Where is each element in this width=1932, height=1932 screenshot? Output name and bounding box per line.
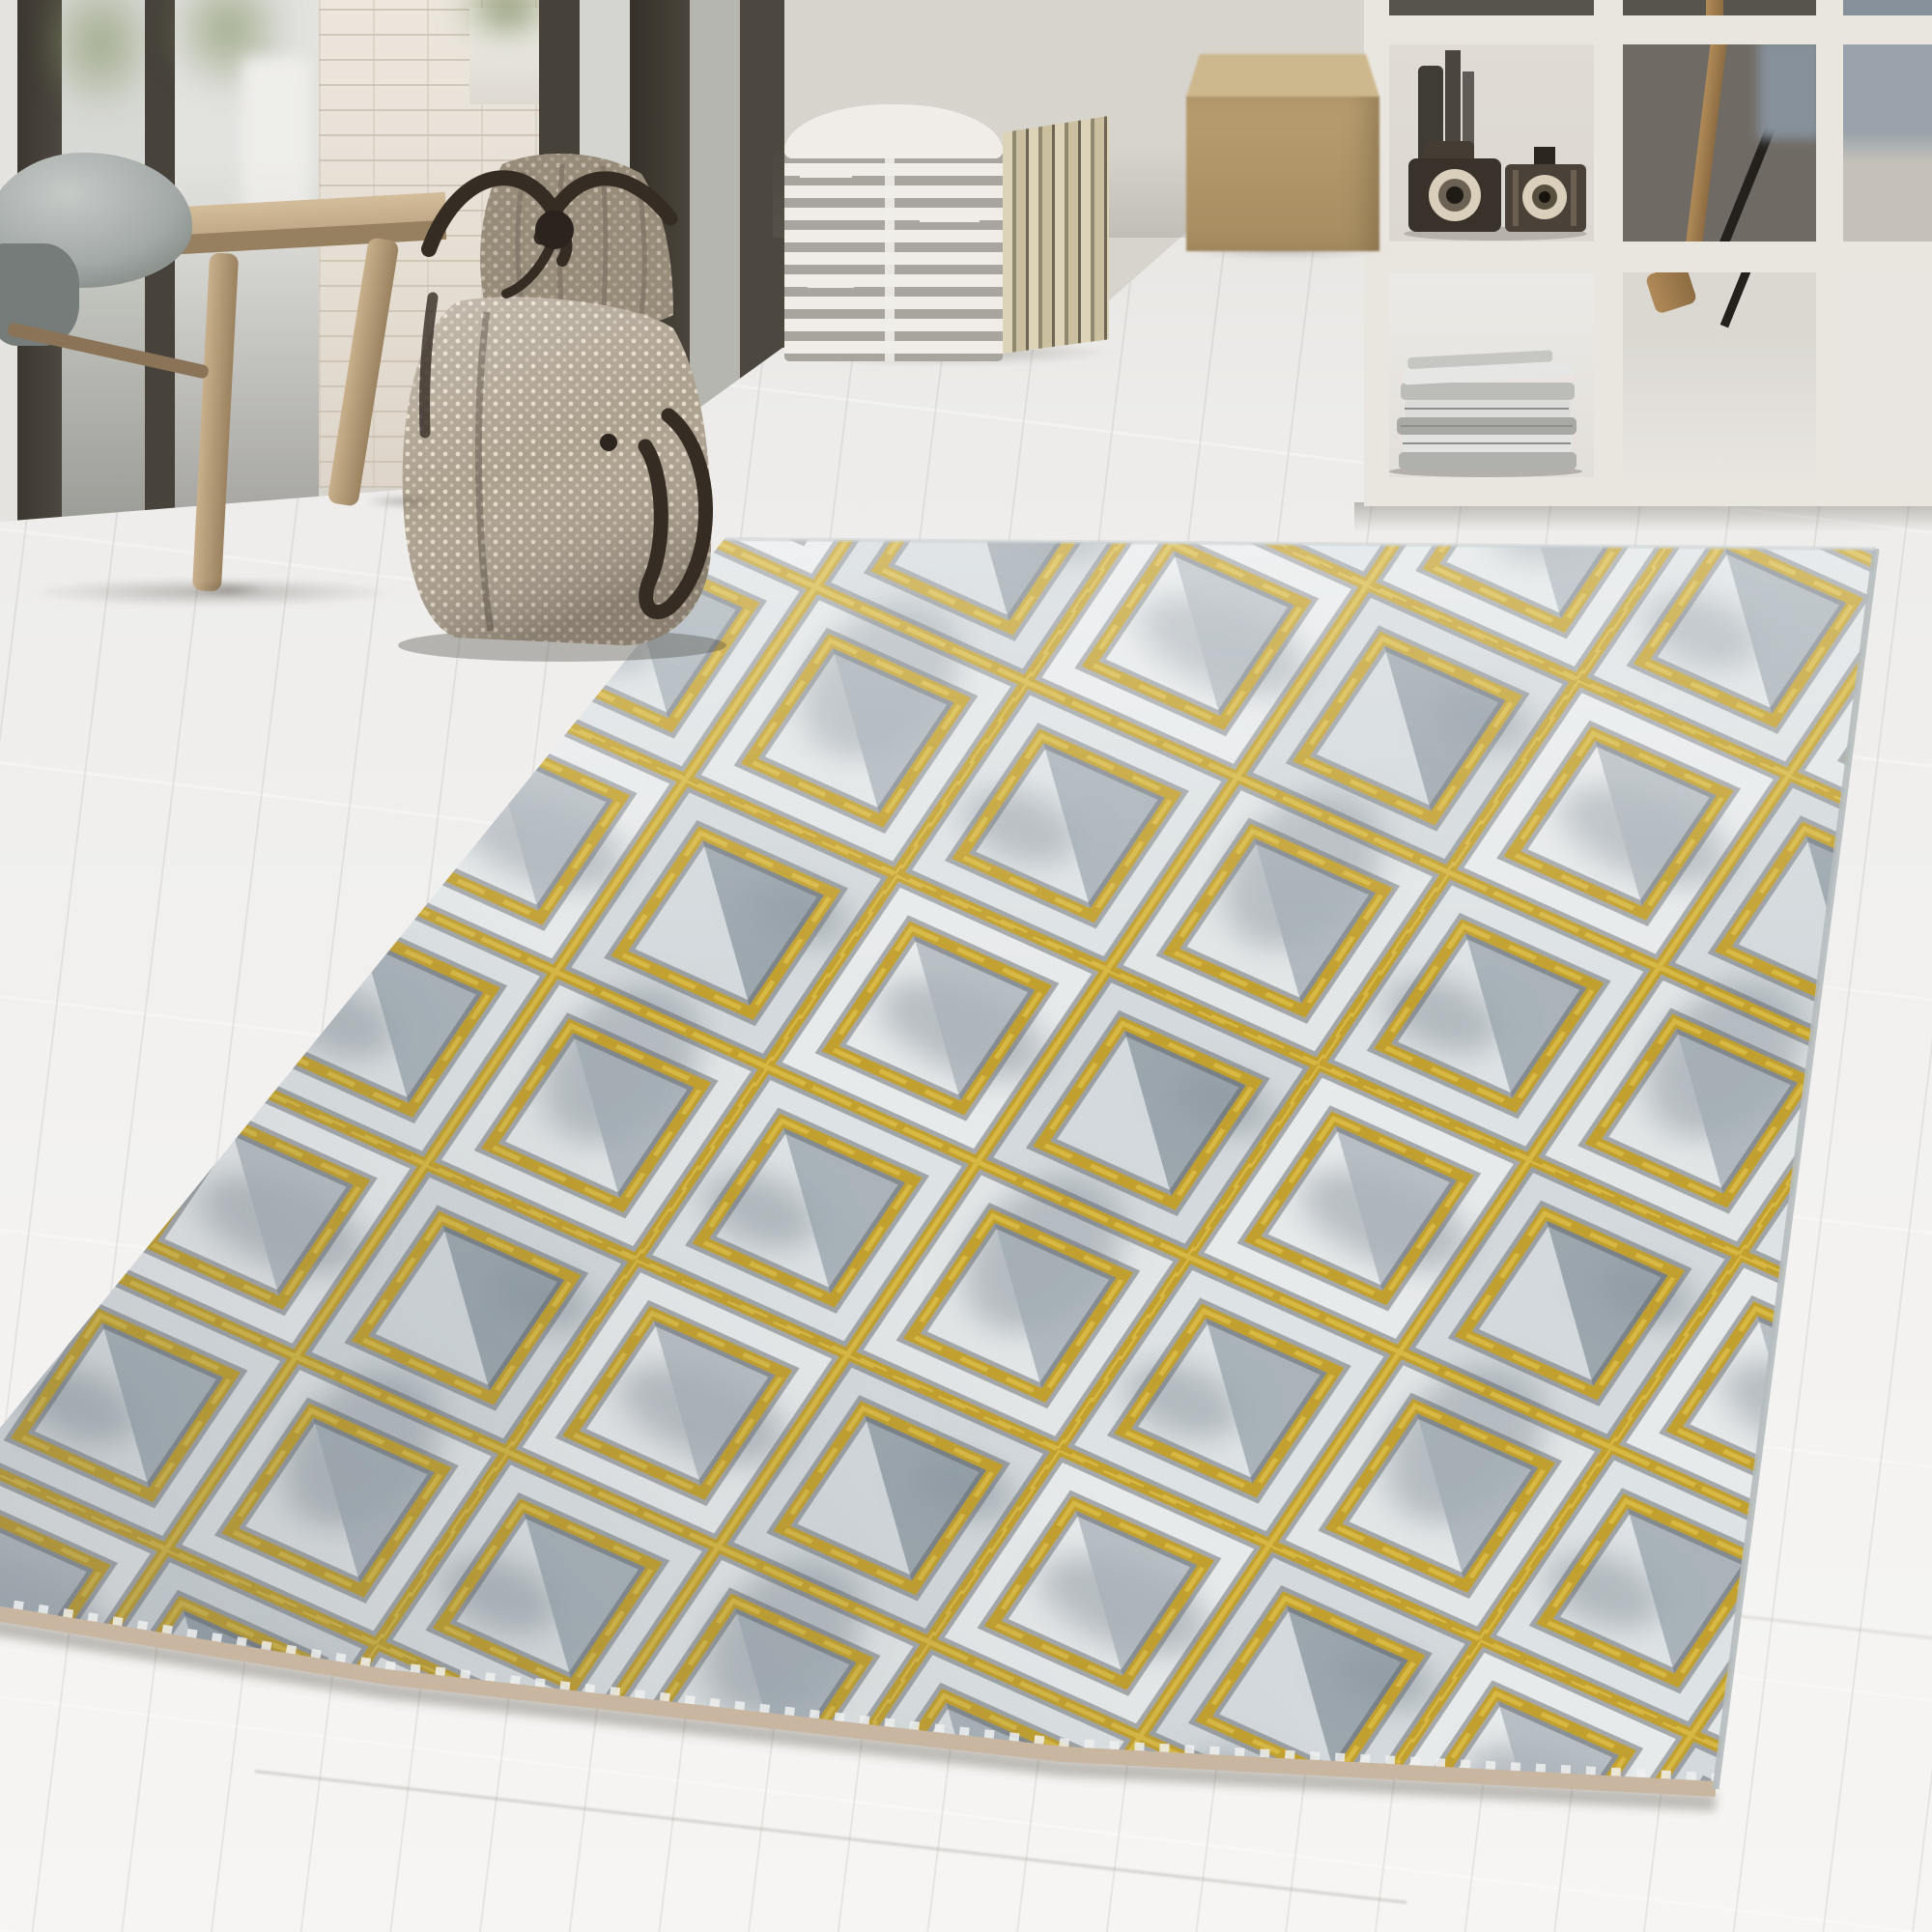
blue-chair-blur (1758, 44, 1816, 139)
vintage-cameras (1389, 44, 1594, 241)
easel-leg-icon (1706, 0, 1723, 15)
shelf-top-glimpse (1389, 0, 1594, 15)
bag-body (403, 297, 712, 645)
tan-pouf-front (1186, 97, 1379, 251)
shelf-cell-easel-foot (1623, 272, 1816, 477)
camera-right (1505, 147, 1586, 232)
shelf-cell-cameras (1389, 44, 1594, 241)
shelf-top-glimpse (1843, 0, 1932, 15)
shelf-cell-empty (1843, 272, 1932, 477)
pouf-top-face (784, 104, 1003, 158)
leg-shadow (189, 582, 267, 597)
shelf-cell-newspapers (1389, 272, 1594, 477)
shelf-top-glimpse (1623, 0, 1816, 15)
striped-pouf (784, 104, 1109, 363)
shelf-cell-through-view (1623, 44, 1816, 241)
cube-shelf (1364, 0, 1932, 506)
shelf-cell-corner (1843, 44, 1932, 241)
black-rod-tip (1720, 272, 1751, 327)
pouf-side-face (1003, 116, 1109, 354)
rug-shape (0, 539, 1876, 1803)
newspaper-stack (1389, 272, 1594, 477)
pouf-stripe-break (808, 276, 854, 288)
pouf-stripe-break (920, 211, 980, 222)
room-scene (0, 0, 1932, 1932)
tan-pouf-top (1186, 54, 1379, 97)
rug-near-shading (0, 539, 1876, 1789)
pouf-center-seam (885, 141, 895, 361)
easel-foot (1645, 272, 1698, 315)
strap-knot (535, 211, 574, 249)
pouf-stripe-break (800, 166, 852, 178)
easel-leg (1686, 44, 1728, 241)
bag-toggle (600, 434, 617, 451)
tan-pouf (1186, 54, 1379, 251)
duffel-bag (379, 124, 755, 674)
leg-shadow (365, 495, 439, 508)
shelf-floor-shadow (1354, 502, 1932, 531)
